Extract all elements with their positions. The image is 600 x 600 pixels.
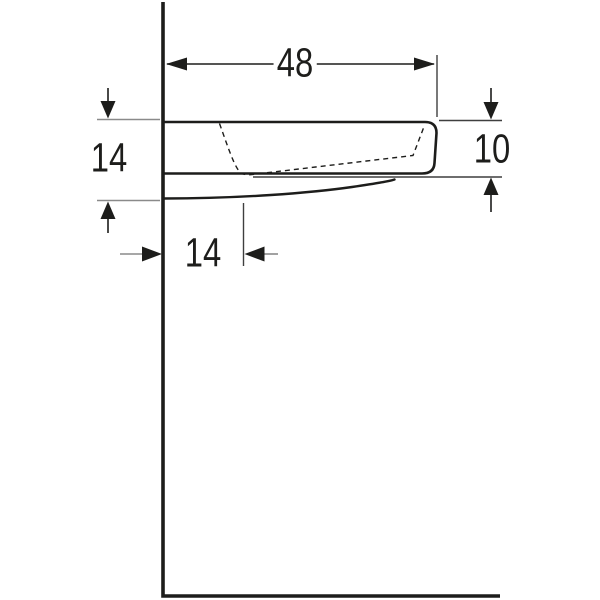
dim-14-bottom-arrow-right-icon	[142, 247, 162, 262]
basin-outline-group	[164, 122, 437, 199]
wall-floor-line	[163, 2, 500, 596]
dim-14-left-arrow-up-icon	[101, 202, 116, 220]
dim-depth-bottom-label: 14	[182, 232, 225, 273]
dim-14-left-arrow-down-icon	[101, 101, 116, 119]
dim-height-right-label: 10	[471, 128, 514, 169]
wall-floor-group	[163, 2, 500, 596]
dim-height-left-label: 14	[88, 137, 131, 178]
dim-48-arrow-right-icon	[414, 58, 435, 71]
dim-10-arrow-down-icon	[484, 102, 499, 120]
basin-bowl-dashed-group	[220, 124, 424, 176]
dimension-drawing: 48 14 10 14	[0, 0, 600, 600]
dim-14-bottom-arrow-left-icon	[245, 247, 265, 262]
basin-rim-outline	[164, 122, 437, 174]
basin-underside-curve	[164, 180, 395, 199]
drawing-canvas	[0, 0, 600, 600]
thin-lines-group	[244, 55, 503, 266]
arrowheads-group	[101, 58, 499, 262]
basin-bowl-dashed-line	[220, 124, 424, 176]
dim-48-arrow-left-icon	[166, 58, 187, 71]
dim-10-arrow-up-icon	[484, 178, 499, 196]
dim-width-top-label: 48	[274, 42, 317, 83]
dimension-lines-group	[108, 64, 491, 233]
